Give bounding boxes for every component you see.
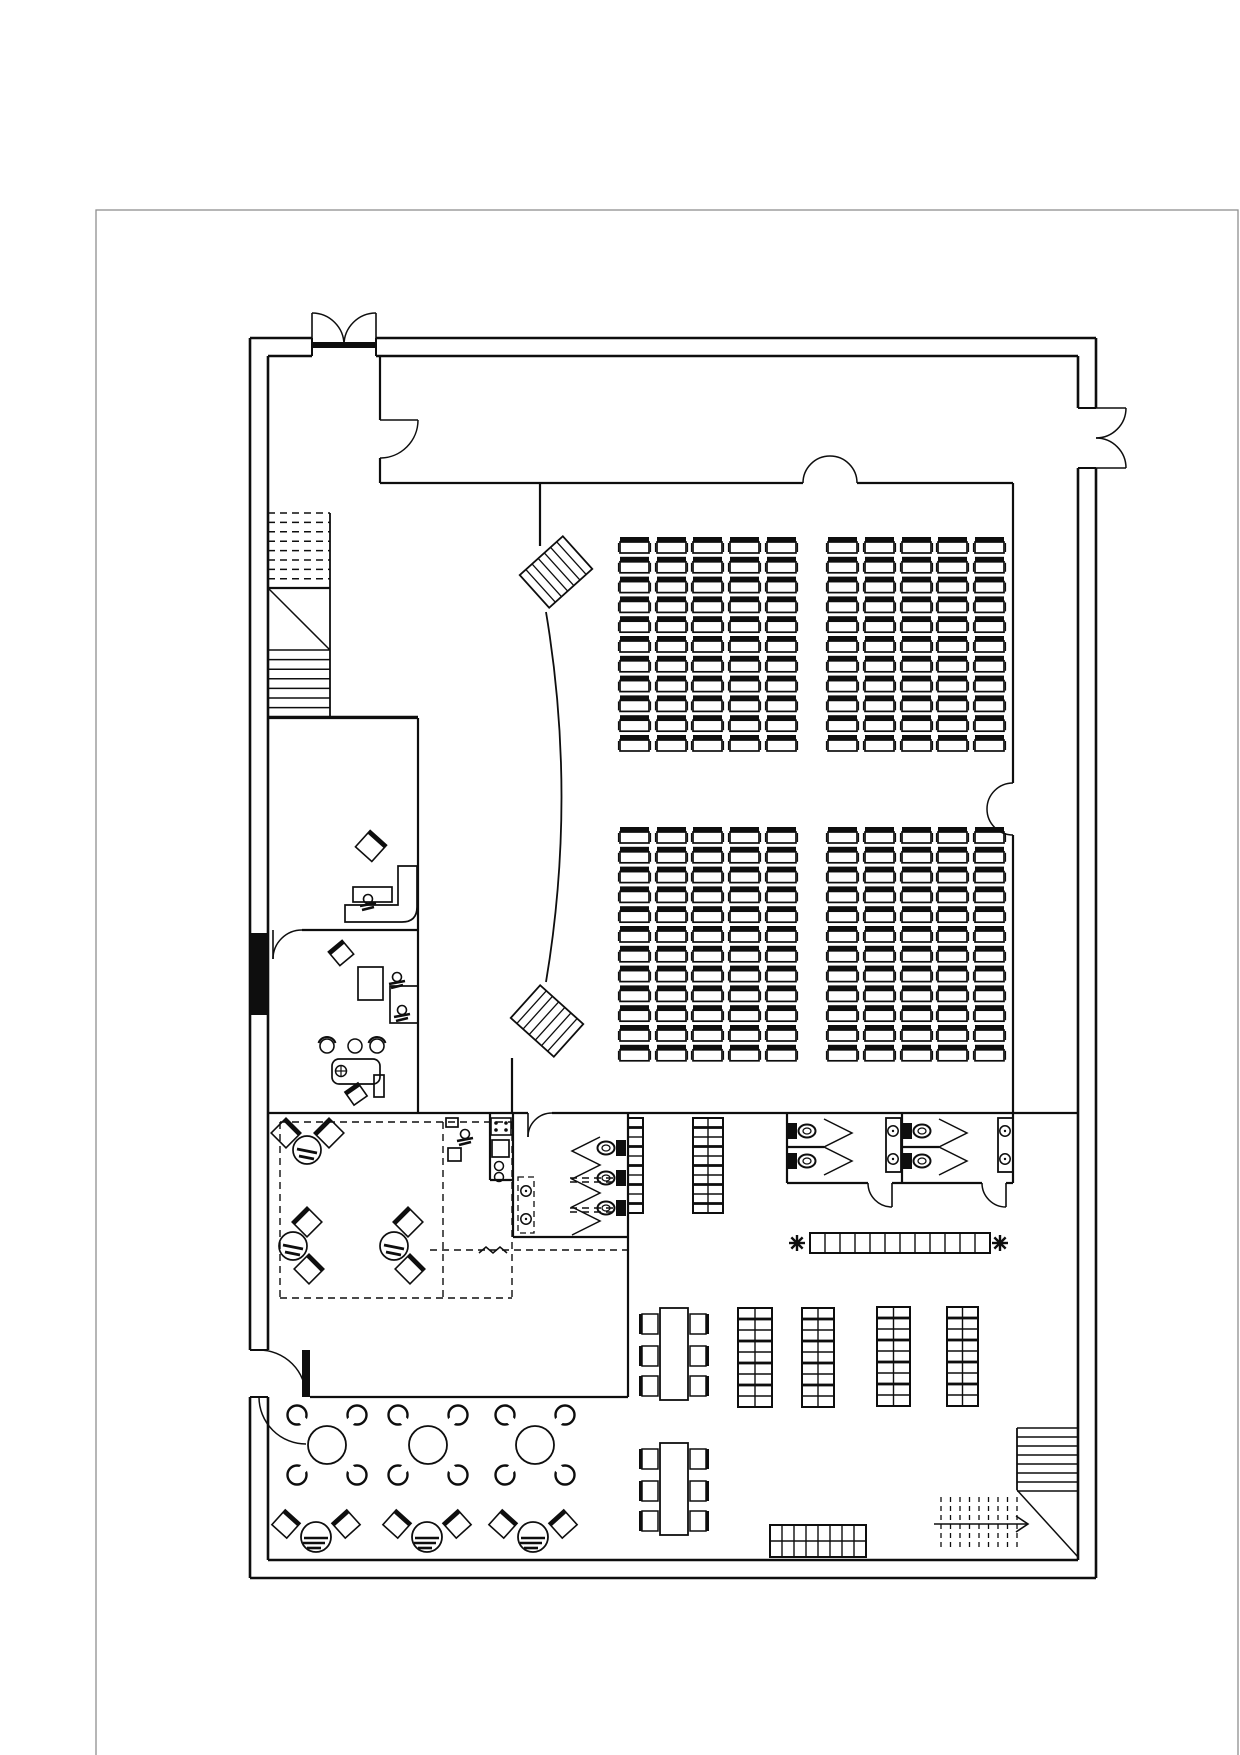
round-table xyxy=(516,1426,554,1464)
seat xyxy=(656,577,688,593)
seat xyxy=(901,1005,933,1021)
seat xyxy=(901,577,933,593)
office-desk xyxy=(374,1075,384,1097)
seat-pan xyxy=(938,542,967,553)
seat xyxy=(692,656,724,672)
seat-pan xyxy=(828,872,857,883)
seat-pan xyxy=(902,700,931,711)
seat-pan xyxy=(828,832,857,843)
seat xyxy=(864,1025,896,1041)
office-chair xyxy=(345,1083,367,1105)
seat-pan xyxy=(975,1010,1004,1021)
chair-back xyxy=(292,1207,310,1225)
seat-pan xyxy=(938,1010,967,1021)
seat-pan xyxy=(828,931,857,942)
seat-pan xyxy=(657,872,686,883)
seat-pan xyxy=(828,911,857,922)
seat-pan xyxy=(693,971,722,982)
seat-pan xyxy=(865,971,894,982)
seat xyxy=(656,946,688,962)
seat-pan xyxy=(620,951,649,962)
shade-line xyxy=(283,1245,303,1249)
seat-pan xyxy=(767,641,796,652)
door-swing-arc xyxy=(273,930,302,959)
door-swing-arc xyxy=(1096,438,1126,468)
stove-burner xyxy=(504,1128,508,1132)
seat-pan xyxy=(938,700,967,711)
shelf-stock xyxy=(947,1317,978,1320)
shelf-stock xyxy=(693,1164,723,1167)
seat xyxy=(619,966,651,982)
seat xyxy=(864,616,896,632)
seat xyxy=(729,557,761,573)
seat xyxy=(619,847,651,863)
seat xyxy=(692,715,724,731)
chair-opening xyxy=(402,1419,412,1429)
seat xyxy=(937,715,969,731)
seat xyxy=(901,557,933,573)
seat xyxy=(729,636,761,652)
seat xyxy=(692,616,724,632)
seat xyxy=(937,847,969,863)
chair-back xyxy=(283,1118,301,1136)
staircase-northwest xyxy=(268,513,418,717)
seat-pan xyxy=(865,562,894,573)
seat-pan xyxy=(693,1050,722,1061)
seat xyxy=(729,676,761,692)
seat xyxy=(827,656,859,672)
lounge-chair xyxy=(272,1510,300,1538)
shelf-stock xyxy=(628,1145,643,1148)
seat-pan xyxy=(693,1010,722,1021)
toilet-tank xyxy=(787,1153,797,1169)
seat-pan xyxy=(975,951,1004,962)
seat xyxy=(864,847,896,863)
seat-pan xyxy=(730,621,759,632)
chair-back xyxy=(639,1376,642,1396)
seat xyxy=(692,906,724,922)
seat xyxy=(729,577,761,593)
door-swing-arc xyxy=(312,313,344,345)
seat-pan xyxy=(828,661,857,672)
seat-pan xyxy=(767,891,796,902)
seat-pan xyxy=(902,971,931,982)
long-table-group xyxy=(639,1308,709,1400)
seat-pan xyxy=(975,700,1004,711)
seat xyxy=(729,946,761,962)
seat-pan xyxy=(902,931,931,942)
seat-pan xyxy=(938,720,967,731)
seat-pan xyxy=(975,1050,1004,1061)
seat xyxy=(692,946,724,962)
dining-chair xyxy=(690,1511,706,1531)
door-swing-arc xyxy=(344,313,376,345)
seat xyxy=(766,1045,798,1061)
seat-pan xyxy=(828,542,857,553)
drawing-page xyxy=(0,0,1240,1755)
seat xyxy=(766,557,798,573)
seat xyxy=(656,735,688,751)
seat-pan xyxy=(938,601,967,612)
seat xyxy=(692,827,724,843)
chair-back xyxy=(328,940,344,955)
seat xyxy=(901,985,933,1001)
seat xyxy=(766,827,798,843)
seat xyxy=(729,735,761,751)
seat-pan xyxy=(975,542,1004,553)
door-swing-arc xyxy=(868,1183,892,1207)
seat-pan xyxy=(865,700,894,711)
round-dining-tables xyxy=(288,1406,575,1485)
lounge-unit xyxy=(489,1510,577,1552)
seat-pan xyxy=(693,911,722,922)
seat-pan xyxy=(767,990,796,1001)
seat xyxy=(937,926,969,942)
seat xyxy=(656,1005,688,1021)
seat xyxy=(827,1045,859,1061)
seat xyxy=(827,847,859,863)
seat xyxy=(827,537,859,553)
seat xyxy=(656,557,688,573)
seat xyxy=(729,867,761,883)
sink-drain xyxy=(1004,1158,1006,1160)
seat xyxy=(692,985,724,1001)
seat-pan xyxy=(865,1010,894,1021)
seat-pan xyxy=(693,661,722,672)
partition-zigzag xyxy=(572,1137,600,1235)
seat-pan xyxy=(767,562,796,573)
shelf-stock xyxy=(802,1384,834,1387)
office-chair xyxy=(328,940,353,965)
door-swing-arc xyxy=(1096,408,1126,438)
seat-pan xyxy=(730,740,759,751)
toilet-icon xyxy=(787,1153,816,1169)
shelf-stock xyxy=(628,1183,643,1186)
seat-pan xyxy=(767,740,796,751)
seat-pan xyxy=(693,700,722,711)
seat-pan xyxy=(730,832,759,843)
seat xyxy=(827,676,859,692)
seat xyxy=(766,985,798,1001)
chair-back xyxy=(393,1207,411,1225)
seat xyxy=(766,695,798,711)
person-head xyxy=(398,1006,407,1015)
seat xyxy=(656,867,688,883)
seat xyxy=(827,946,859,962)
plant-icon xyxy=(789,1235,805,1251)
salon-station xyxy=(271,1118,344,1164)
toilet-tank xyxy=(902,1123,912,1139)
person-icon xyxy=(394,1006,410,1022)
sink-drain xyxy=(892,1130,894,1132)
chair-back xyxy=(314,1118,332,1136)
door-swing-arc xyxy=(528,1113,552,1137)
shade-line xyxy=(297,1149,317,1153)
seat-pan xyxy=(730,700,759,711)
shelf-stock xyxy=(877,1339,910,1342)
seat xyxy=(729,906,761,922)
seat-pan xyxy=(693,872,722,883)
seat xyxy=(827,827,859,843)
seat xyxy=(656,636,688,652)
seat xyxy=(864,557,896,573)
seat xyxy=(901,906,933,922)
chair-back xyxy=(443,1510,461,1526)
seat xyxy=(901,596,933,612)
auditorium-seating xyxy=(619,537,1006,1061)
dining-chair xyxy=(642,1376,658,1396)
seat-pan xyxy=(620,891,649,902)
seat xyxy=(656,966,688,982)
round-table xyxy=(409,1426,447,1464)
seat xyxy=(974,735,1006,751)
chair-opening xyxy=(444,1461,454,1471)
seat-pan xyxy=(620,661,649,672)
meeting-chair xyxy=(320,1039,334,1053)
seat-pan xyxy=(767,542,796,553)
seat-pan xyxy=(975,1030,1004,1041)
dining-chair xyxy=(642,1449,658,1469)
seat-pan xyxy=(767,661,796,672)
chair-back xyxy=(706,1511,709,1531)
seat xyxy=(937,906,969,922)
reception-sofa xyxy=(345,866,417,922)
seat xyxy=(619,636,651,652)
seat xyxy=(656,906,688,922)
seat-pan xyxy=(767,911,796,922)
seat xyxy=(974,557,1006,573)
seat-pan xyxy=(730,931,759,942)
seat xyxy=(656,656,688,672)
seat-pan xyxy=(828,700,857,711)
seat-pan xyxy=(865,740,894,751)
seat-pan xyxy=(902,582,931,593)
seat xyxy=(766,966,798,982)
seat xyxy=(619,946,651,962)
storage-rack xyxy=(802,1308,834,1407)
seat xyxy=(766,676,798,692)
seat-pan xyxy=(730,911,759,922)
shade-line xyxy=(386,1252,401,1255)
seat-pan xyxy=(902,542,931,553)
seat-pan xyxy=(902,872,931,883)
seat xyxy=(827,735,859,751)
seat xyxy=(692,966,724,982)
chair-back xyxy=(332,1510,350,1526)
storage-rack xyxy=(693,1118,723,1213)
seat xyxy=(974,656,1006,672)
chair-back xyxy=(706,1376,709,1396)
seat-pan xyxy=(938,872,967,883)
seat xyxy=(974,676,1006,692)
seat-pan xyxy=(730,951,759,962)
seat xyxy=(619,676,651,692)
staircase-southeast xyxy=(934,1428,1078,1557)
seat xyxy=(901,735,933,751)
seat-pan xyxy=(730,990,759,1001)
seat xyxy=(937,636,969,652)
seat xyxy=(827,557,859,573)
chair-opening xyxy=(402,1461,412,1471)
round-table xyxy=(308,1426,346,1464)
chair-opening xyxy=(444,1419,454,1429)
dining-chair xyxy=(690,1346,706,1366)
seat xyxy=(692,867,724,883)
seat xyxy=(619,827,651,843)
seat xyxy=(729,985,761,1001)
chair-opening xyxy=(551,1461,561,1471)
seat xyxy=(901,1025,933,1041)
person-body xyxy=(457,1138,473,1141)
seat xyxy=(864,1005,896,1021)
storage-rack xyxy=(738,1308,772,1407)
seat-pan xyxy=(767,700,796,711)
seat xyxy=(692,735,724,751)
seat xyxy=(901,1045,933,1061)
seat-pan xyxy=(657,1030,686,1041)
seat xyxy=(937,735,969,751)
salon-station xyxy=(380,1207,425,1284)
shelf-stock xyxy=(947,1339,978,1342)
chair-back xyxy=(394,1510,412,1526)
seat-pan xyxy=(730,641,759,652)
hatch-frame xyxy=(511,985,584,1057)
seat xyxy=(656,1025,688,1041)
seat-pan xyxy=(828,720,857,731)
seat xyxy=(619,886,651,902)
seat xyxy=(974,847,1006,863)
seat-pan xyxy=(975,891,1004,902)
seat xyxy=(766,656,798,672)
chair-back xyxy=(500,1510,518,1526)
office-furniture xyxy=(319,830,512,1181)
seat xyxy=(827,966,859,982)
door-swing-arc xyxy=(830,456,857,483)
shelf-stock xyxy=(628,1202,643,1205)
seat-pan xyxy=(767,1050,796,1061)
seat-block-bottom xyxy=(619,827,1006,1061)
seat-pan xyxy=(828,1030,857,1041)
seat-pan xyxy=(938,832,967,843)
stage-steps-hatch xyxy=(520,536,593,608)
seat-pan xyxy=(620,1030,649,1041)
seat-pan xyxy=(767,931,796,942)
seat-pan xyxy=(975,582,1004,593)
seat-pan xyxy=(620,911,649,922)
seat xyxy=(766,596,798,612)
chair-back xyxy=(549,1510,567,1526)
seat-block-top xyxy=(619,537,1006,751)
seat xyxy=(937,676,969,692)
seat xyxy=(974,946,1006,962)
salon-stations xyxy=(271,1118,425,1284)
toilet-icon xyxy=(902,1123,931,1139)
seat-pan xyxy=(902,740,931,751)
shelf-stock xyxy=(738,1384,772,1387)
seat xyxy=(656,676,688,692)
chair-opening xyxy=(301,1419,311,1429)
seat xyxy=(937,946,969,962)
seat-pan xyxy=(657,582,686,593)
seat-pan xyxy=(865,872,894,883)
seat-pan xyxy=(657,542,686,553)
shade-line xyxy=(384,1245,404,1249)
seat xyxy=(656,616,688,632)
seat xyxy=(864,1045,896,1061)
seat-pan xyxy=(902,1050,931,1061)
seat xyxy=(656,596,688,612)
seat-pan xyxy=(693,1030,722,1041)
sink-drain xyxy=(1004,1130,1006,1132)
seat-pan xyxy=(730,720,759,731)
shelf-stock xyxy=(738,1318,772,1321)
seat-pan xyxy=(620,700,649,711)
chair-back xyxy=(639,1314,642,1334)
seat xyxy=(656,695,688,711)
toilet-bowl xyxy=(799,1125,816,1138)
seat xyxy=(619,715,651,731)
seat-pan xyxy=(767,951,796,962)
seat-pan xyxy=(620,601,649,612)
seat xyxy=(901,946,933,962)
seat xyxy=(974,926,1006,942)
seat-pan xyxy=(693,720,722,731)
shelf-stock xyxy=(738,1340,772,1343)
seat xyxy=(656,886,688,902)
seat-pan xyxy=(767,720,796,731)
seat-pan xyxy=(975,931,1004,942)
seat-pan xyxy=(865,641,894,652)
seat xyxy=(901,926,933,942)
seat-pan xyxy=(938,891,967,902)
seat-pan xyxy=(657,621,686,632)
seat-pan xyxy=(938,951,967,962)
chair-back xyxy=(407,1254,425,1272)
seat-pan xyxy=(975,641,1004,652)
seat-pan xyxy=(975,562,1004,573)
seat xyxy=(827,715,859,731)
seat xyxy=(692,636,724,652)
person-body xyxy=(459,1142,471,1145)
seat-pan xyxy=(657,911,686,922)
seat xyxy=(656,847,688,863)
seat xyxy=(729,966,761,982)
seat xyxy=(864,966,896,982)
seat xyxy=(619,577,651,593)
seat xyxy=(692,695,724,711)
seat-pan xyxy=(730,562,759,573)
seat xyxy=(937,537,969,553)
toilet-bowl xyxy=(598,1142,615,1155)
seat-pan xyxy=(865,661,894,672)
seat xyxy=(864,695,896,711)
seat xyxy=(901,715,933,731)
seat-pan xyxy=(902,601,931,612)
seat-pan xyxy=(620,832,649,843)
seat-pan xyxy=(730,852,759,863)
wall-poche xyxy=(250,933,268,1015)
seat xyxy=(692,577,724,593)
seat-pan xyxy=(730,582,759,593)
partition-zigzag xyxy=(939,1119,967,1175)
seat-pan xyxy=(902,621,931,632)
seat-pan xyxy=(938,621,967,632)
stove-burner xyxy=(494,1121,498,1125)
seat xyxy=(729,715,761,731)
seat xyxy=(656,537,688,553)
seat xyxy=(901,656,933,672)
seat-pan xyxy=(657,740,686,751)
